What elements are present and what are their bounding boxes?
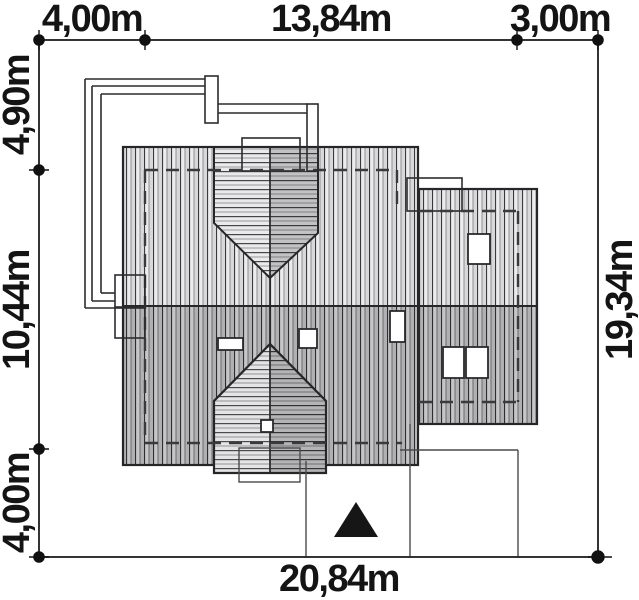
terrace-post — [205, 76, 218, 123]
roof-window — [466, 347, 488, 378]
dimension-label-top-2: 13,84m — [271, 0, 391, 38]
site-plan: 4,00m 13,84m 3,00m 4,90m 10,44m 4,00m 19… — [0, 0, 639, 600]
dimension-label-left-1: 4,90m — [0, 55, 36, 155]
dimension-label-left-2: 10,44m — [0, 250, 36, 370]
boundary-point — [34, 552, 45, 563]
roof-window — [443, 347, 464, 378]
dimension-label-right-1: 19,34m — [601, 240, 639, 360]
dimension-label-top-1: 4,00m — [42, 0, 142, 38]
roof-plan-drawing — [0, 0, 639, 600]
chimney — [218, 338, 243, 350]
dimension-label-left-3: 4,00m — [0, 453, 36, 553]
dimension-label-top-3: 3,00m — [510, 0, 610, 38]
roof-window — [468, 234, 490, 264]
entrance-arrow-icon — [334, 502, 378, 537]
roof-window — [390, 311, 405, 342]
chimney — [299, 329, 317, 348]
boundary-point — [592, 551, 604, 563]
dimension-label-bottom-1: 20,84m — [279, 560, 399, 598]
boundary-point — [34, 165, 45, 176]
roof-vent — [261, 420, 273, 432]
